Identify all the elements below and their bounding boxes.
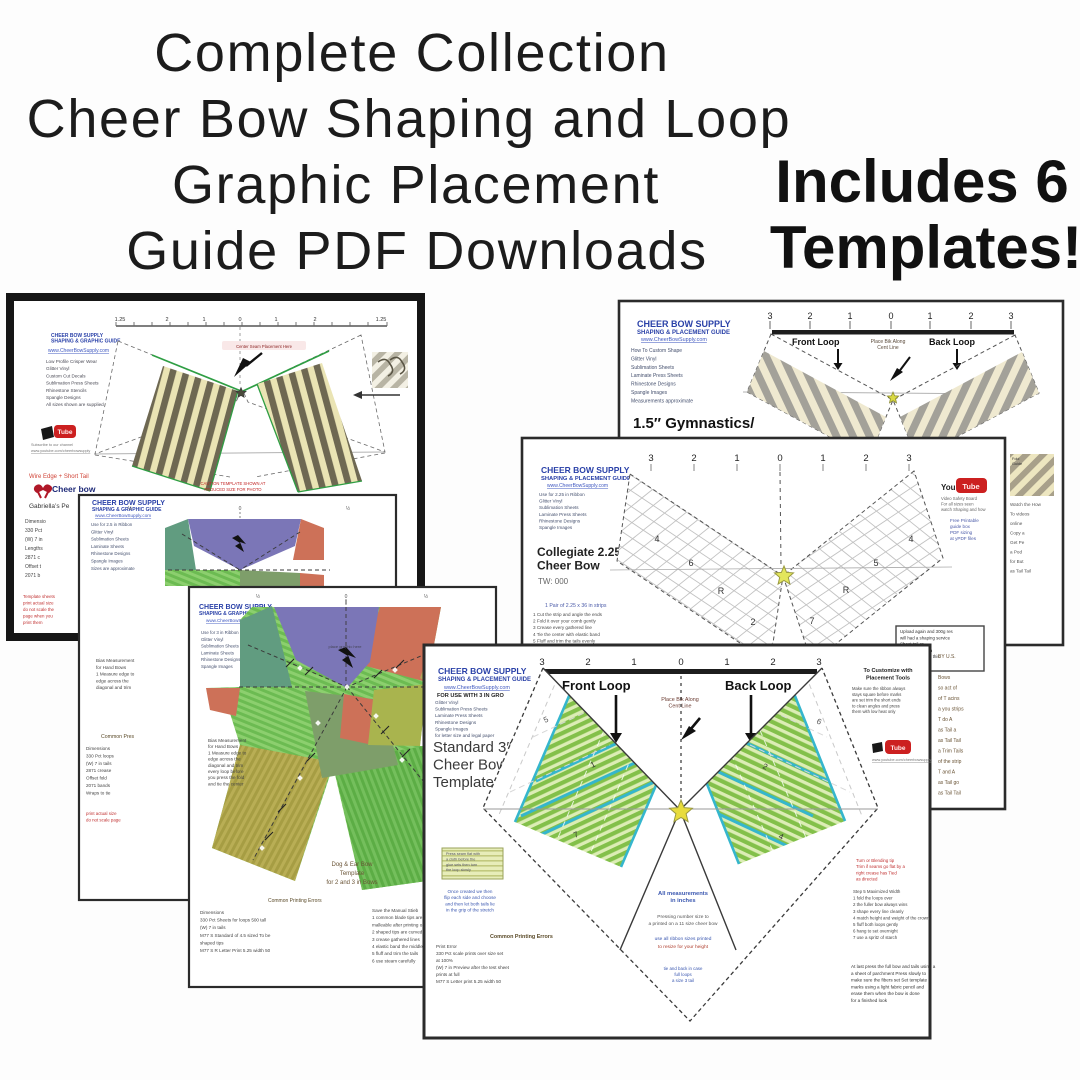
svg-text:3 shape every line cleanly: 3 shape every line cleanly — [853, 909, 904, 914]
svg-text:3: 3 — [539, 657, 544, 668]
svg-text:Back Loop: Back Loop — [929, 337, 976, 347]
svg-text:watch Shaping and how: watch Shaping and how — [941, 507, 986, 512]
svg-text:print actual size: print actual size — [86, 811, 117, 816]
svg-text:2: 2 — [313, 317, 316, 323]
svg-text:www.CheerBowSupply.com: www.CheerBowSupply.com — [640, 337, 707, 343]
svg-text:Once created we then: Once created we then — [448, 889, 493, 894]
svg-text:Cheer bow: Cheer bow — [52, 484, 96, 494]
svg-text:Front Loop: Front Loop — [792, 337, 840, 347]
svg-text:5 fluff both loops gently: 5 fluff both loops gently — [853, 922, 899, 927]
svg-text:1: 1 — [847, 311, 852, 321]
svg-text:Tube: Tube — [890, 745, 905, 752]
svg-text:(W) 7 in tails: (W) 7 in tails — [86, 761, 112, 766]
svg-text:make sure the fibers set: make sure the fibers set Set template — [851, 978, 928, 983]
svg-text:FOR USE WITH 3 IN GRO: FOR USE WITH 3 IN GRO — [437, 693, 504, 699]
svg-text:5 fluff and trim the tail: 5 fluff and trim the tails — [372, 951, 419, 956]
svg-text:Press seam flat with: Press seam flat with — [446, 852, 480, 856]
svg-text:them with low heat only: them with low heat only — [852, 709, 896, 714]
svg-text:for 2 and 3 in Bows: for 2 and 3 in Bows — [326, 880, 377, 886]
svg-text:Sublimation Sheets: Sublimation Sheets — [631, 365, 675, 371]
svg-text:1: 1 — [820, 453, 825, 464]
svg-text:for letter size and legal pape: for letter size and legal paper — [435, 733, 495, 738]
svg-text:Spangle Images: Spangle Images — [539, 525, 573, 530]
svg-text:a cloth before the: a cloth before the — [446, 857, 475, 861]
svg-text:M77 S Letter print 5.25 w: M77 S Letter print 5.25 width 50 — [436, 979, 502, 984]
svg-text:www.CheerBowSupply.com: www.CheerBowSupply.com — [443, 685, 510, 691]
svg-text:4 match height and weight: 4 match height and weight of the crown — [853, 915, 930, 920]
svg-text:1 Pair of 2.25 x 36 in strips: 1 Pair of 2.25 x 36 in strips — [545, 603, 607, 609]
svg-text:M77 S R Letter Print 5.25 wi: M77 S R Letter Print 5.25 width 50 — [200, 948, 271, 953]
svg-text:Sublimation Sheets: Sublimation Sheets — [91, 537, 130, 542]
svg-text:Cheer Bow: Cheer Bow — [433, 757, 507, 774]
svg-text:4: 4 — [654, 534, 659, 544]
svg-text:Cent Line: Cent Line — [668, 704, 691, 710]
svg-text:use all ribbon sizes printed: use all ribbon sizes printed — [655, 936, 712, 942]
svg-text:Glitter Vinyl: Glitter Vinyl — [201, 637, 223, 642]
svg-text:diagonal and trim: diagonal and trim — [208, 763, 243, 768]
svg-text:Back Loop: Back Loop — [725, 678, 792, 693]
svg-text:Templates!: Templates! — [770, 214, 1080, 281]
svg-text:2 the fuller bow always w: 2 the fuller bow always wins — [853, 902, 908, 907]
svg-text:2: 2 — [585, 657, 590, 668]
svg-text:For all sizes seen: For all sizes seen — [941, 502, 974, 507]
svg-text:1 fold the loops over: 1 fold the loops over — [853, 896, 893, 901]
svg-text:Glitter Vinyl: Glitter Vinyl — [91, 529, 113, 534]
svg-text:in inches: in inches — [670, 898, 695, 904]
svg-text:Wire Edge + Short Tail: Wire Edge + Short Tail — [29, 474, 89, 480]
svg-text:SHAPING & PLACEMENT GUIDE: SHAPING & PLACEMENT GUIDE — [541, 476, 631, 482]
svg-text:Step 5 Maximized Width: Step 5 Maximized Width — [853, 889, 901, 894]
svg-text:Guide PDF Downloads: Guide PDF Downloads — [126, 221, 708, 281]
svg-text:2: 2 — [807, 311, 812, 321]
svg-text:All sizes shown are supplied: All sizes shown are supplied — [46, 402, 104, 407]
svg-text:at 100%: at 100% — [436, 958, 453, 963]
svg-text:Placement Tools: Placement Tools — [866, 676, 910, 682]
svg-text:as Tail Tail: as Tail Tail — [938, 791, 961, 797]
svg-text:Glitter Vinyl: Glitter Vinyl — [435, 700, 458, 705]
svg-text:Glitter Vinyl: Glitter Vinyl — [539, 499, 562, 504]
svg-text:of T acins: of T acins — [938, 696, 960, 702]
svg-text:6: 6 — [688, 558, 693, 568]
svg-text:page when you: page when you — [23, 614, 53, 619]
svg-text:Spangle Designs: Spangle Designs — [46, 395, 81, 400]
svg-text:2: 2 — [863, 453, 868, 464]
svg-text:Bows: Bows — [938, 675, 951, 681]
svg-text:1 Measure edge to: 1 Measure edge to — [208, 750, 247, 755]
svg-text:R: R — [718, 586, 725, 596]
svg-text:R: R — [843, 585, 850, 595]
svg-text:Watch the How: Watch the How — [1010, 502, 1042, 507]
svg-text:Place Bik Along: Place Bik Along — [661, 697, 698, 703]
svg-text:At last press the full bow: At last press the full bow and tails usi… — [851, 964, 936, 969]
svg-text:tie and back in case: tie and back in case — [664, 966, 703, 971]
svg-text:7: 7 — [809, 616, 814, 626]
svg-text:full loops: full loops — [674, 972, 692, 977]
svg-text:CAUTION TEMPLATE SHOWN AT: CAUTION TEMPLATE SHOWN AT — [201, 481, 266, 486]
svg-text:Rhinestone Designs: Rhinestone Designs — [539, 518, 581, 523]
svg-text:print them: print them — [23, 620, 43, 625]
svg-text:Bias Measurement: Bias Measurement — [96, 658, 135, 663]
svg-text:1: 1 — [734, 453, 739, 464]
svg-text:4 elastic band the middle: 4 elastic band the middle — [372, 944, 423, 949]
svg-text:Use for 2.5 in Ribbon: Use for 2.5 in Ribbon — [91, 522, 133, 527]
svg-text:www.youtube.com/cheerbowsupply: www.youtube.com/cheerbowsupply — [872, 758, 931, 762]
svg-text:(W) 7 in: (W) 7 in — [25, 537, 43, 543]
svg-text:Spangle Images: Spangle Images — [91, 559, 124, 564]
svg-text:Subscribe to our channel: Subscribe to our channel — [31, 443, 73, 447]
svg-text:Dimensio: Dimensio — [25, 519, 46, 525]
svg-text:330 Pct: 330 Pct — [25, 528, 43, 534]
svg-text:All measurements: All measurements — [658, 891, 708, 897]
svg-text:Make sure the ribbon always: Make sure the ribbon always — [852, 686, 905, 691]
svg-text:PDF sizing: PDF sizing — [950, 530, 973, 535]
svg-text:3 crease gathered lines: 3 crease gathered lines — [372, 937, 420, 942]
svg-text:Spangle Images: Spangle Images — [631, 390, 668, 396]
svg-text:1: 1 — [202, 317, 205, 323]
svg-text:guide box: guide box — [950, 524, 971, 529]
svg-text:Cent Line: Cent Line — [877, 345, 899, 351]
svg-text:7 use a spritz of starch: 7 use a spritz of starch — [853, 935, 898, 940]
svg-text:Trim if seams go flat by a: Trim if seams go flat by a — [856, 864, 905, 869]
svg-text:Copy a: Copy a — [1010, 531, 1025, 536]
svg-text:Template: Template — [433, 774, 494, 791]
svg-text:BY U.S.: BY U.S. — [938, 654, 956, 660]
svg-text:for a finished look: for a finished look — [851, 998, 888, 1003]
svg-text:1: 1 — [724, 657, 729, 668]
svg-text:Custom Cut Decals: Custom Cut Decals — [46, 373, 86, 378]
svg-text:Fold: Fold — [1012, 457, 1019, 461]
svg-text:Collegiate 2.25″: Collegiate 2.25″ — [537, 545, 627, 559]
svg-text:2: 2 — [165, 317, 168, 323]
svg-text:shaped tips: shaped tips — [200, 940, 224, 945]
svg-text:print actual size: print actual size — [23, 601, 54, 606]
svg-text:malleable after printing ou: malleable after printing out — [372, 922, 427, 927]
svg-text:Laminate Press Sheets: Laminate Press Sheets — [539, 512, 587, 517]
svg-text:3: 3 — [906, 453, 911, 464]
svg-text:Laminate Press Sheets: Laminate Press Sheets — [435, 713, 483, 718]
svg-text:2871 c: 2871 c — [25, 555, 41, 561]
svg-text:of the strip: of the strip — [938, 759, 962, 765]
svg-text:in the grip of the stretc: in the grip of the stretch — [446, 908, 494, 913]
svg-text:Includes 6: Includes 6 — [775, 148, 1068, 215]
svg-text:Offset t: Offset t — [25, 564, 42, 570]
svg-text:2071 bands: 2071 bands — [86, 783, 111, 788]
svg-text:0: 0 — [678, 657, 683, 668]
svg-text:Complete Collection: Complete Collection — [154, 23, 670, 83]
svg-text:stays square before marks: stays square before marks — [852, 692, 901, 697]
svg-text:Cheer Bow: Cheer Bow — [537, 559, 600, 573]
svg-text:Use for 2.25 in Ribbon: Use for 2.25 in Ribbon — [539, 492, 585, 497]
svg-text:3: 3 — [767, 311, 772, 321]
svg-text:the loop slowly: the loop slowly — [446, 868, 471, 872]
svg-text:for Hand Bows: for Hand Bows — [96, 665, 127, 670]
svg-text:Print Error: Print Error — [436, 944, 457, 949]
svg-text:Get Pe: Get Pe — [1010, 540, 1025, 545]
svg-text:for But: for But — [1010, 559, 1024, 564]
svg-text:2071 b: 2071 b — [25, 573, 41, 579]
svg-text:1: 1 — [631, 657, 636, 668]
svg-text:2871 crease: 2871 crease — [86, 768, 112, 773]
svg-text:M77 S Standard of 4.5 sized: M77 S Standard of 4.5 sized To be — [200, 933, 271, 938]
svg-text:1.5″ Gymnastics/: 1.5″ Gymnastics/ — [633, 415, 755, 432]
svg-text:www.youtube.com/cheerbowsupply: www.youtube.com/cheerbowsupply — [31, 449, 90, 453]
svg-text:Glitter Vinyl: Glitter Vinyl — [46, 366, 69, 371]
svg-text:3 Crease every gathered line: 3 Crease every gathered line — [533, 625, 592, 630]
svg-text:Rhinestone Stencils: Rhinestone Stencils — [46, 388, 87, 393]
svg-text:www.CheerBowSupply.com: www.CheerBowSupply.com — [48, 348, 109, 354]
svg-text:do not scale the: do not scale the — [23, 607, 55, 612]
svg-text:online: online — [1010, 521, 1023, 526]
svg-text:Dimensions: Dimensions — [200, 910, 225, 915]
svg-text:a Trim Tails: a Trim Tails — [938, 749, 964, 755]
svg-text:Free Printable: Free Printable — [950, 518, 979, 523]
svg-text:0: 0 — [238, 317, 241, 323]
svg-text:0: 0 — [239, 506, 242, 512]
svg-text:Template sheets: Template sheets — [23, 594, 56, 599]
svg-text:Sublimation Press Sheets: Sublimation Press Sheets — [46, 381, 99, 386]
svg-text:Graphic Placement: Graphic Placement — [172, 155, 660, 215]
svg-text:flip each side and choose: flip each side and choose — [444, 895, 496, 900]
svg-text:glue sets then turn: glue sets then turn — [446, 863, 477, 867]
svg-text:2: 2 — [691, 453, 696, 464]
svg-text:T do A: T do A — [938, 717, 953, 723]
svg-text:a sheet of parchment Pre: a sheet of parchment Press slowly to — [851, 971, 927, 976]
svg-text:Bias Measurement: Bias Measurement — [208, 738, 247, 743]
svg-text:2: 2 — [770, 657, 775, 668]
svg-text:You: You — [941, 483, 956, 492]
svg-text:1 common blade tips are: 1 common blade tips are — [372, 915, 423, 920]
svg-text:2 shaped tips are curved: 2 shaped tips are curved — [372, 930, 423, 935]
svg-text:as directed: as directed — [856, 877, 878, 882]
svg-text:6 hang to set overnight: 6 hang to set overnight — [853, 929, 898, 934]
svg-text:Turn or Blending tip: Turn or Blending tip — [856, 858, 895, 863]
svg-text:1: 1 — [927, 311, 932, 321]
svg-text:Common Printing Errors: Common Printing Errors — [490, 934, 553, 940]
svg-text:5: 5 — [873, 558, 878, 568]
svg-text:for Hand Bows: for Hand Bows — [208, 744, 239, 749]
svg-text:Measurements approximate: Measurements approximate — [631, 398, 693, 404]
svg-text:Tube: Tube — [57, 429, 72, 436]
svg-text:Sublimation Sheets: Sublimation Sheets — [201, 644, 240, 649]
svg-text:4 Tie the center with elastic: 4 Tie the center with elastic band — [533, 632, 600, 637]
svg-text:erase them when the bow i: erase them when the bow is done — [851, 991, 920, 996]
svg-text:Center Seam Placement Here: Center Seam Placement Here — [236, 344, 293, 349]
svg-text:Video Safety Board: Video Safety Board — [941, 496, 978, 501]
svg-text:3: 3 — [1008, 311, 1013, 321]
svg-text:marks using a light fabric: marks using a light fabric pencil and — [851, 984, 924, 989]
svg-text:1.25: 1.25 — [376, 317, 387, 323]
svg-text:Front Loop: Front Loop — [562, 678, 631, 693]
svg-text:4: 4 — [908, 534, 913, 544]
svg-text:as Tail Tail: as Tail Tail — [938, 738, 961, 744]
svg-text:6 use steam carefully: 6 use steam carefully — [372, 958, 416, 963]
svg-text:How To Custom Shape: How To Custom Shape — [631, 348, 682, 354]
svg-text:Dog & Ear Bow: Dog & Ear Bow — [331, 862, 373, 868]
svg-text:Rhinestone Designs: Rhinestone Designs — [91, 551, 131, 556]
svg-text:www.CheerBowSupply.com: www.CheerBowSupply.com — [95, 513, 151, 518]
svg-text:1 Cut the strip and angle the: 1 Cut the strip and angle the ends — [533, 612, 603, 617]
svg-text:Sublimation Sheets: Sublimation Sheets — [539, 505, 579, 510]
svg-text:a Pod: a Pod — [1010, 550, 1022, 555]
svg-text:3: 3 — [816, 657, 821, 668]
svg-text:Template: Template — [340, 871, 365, 877]
svg-text:and then let both tails l: and then let both tails lie — [445, 901, 495, 906]
svg-text:to clean angles and press: to clean angles and press — [852, 703, 900, 708]
svg-text:2 Fold it over your comb gent: 2 Fold it over your comb gently — [533, 619, 597, 624]
svg-text:you press the fold: you press the fold — [208, 775, 245, 780]
svg-text:2: 2 — [968, 311, 973, 321]
svg-text:a printed on a 11 size cheer b: a printed on a 11 size cheer bow — [649, 921, 719, 927]
svg-text:Glitter Vinyl: Glitter Vinyl — [631, 356, 656, 362]
svg-text:SHAPING & GRAPHIC GUIDE: SHAPING & GRAPHIC GUIDE — [51, 339, 121, 345]
svg-text:1.25: 1.25 — [115, 317, 126, 323]
svg-text:Rhinestone Designs: Rhinestone Designs — [201, 657, 241, 662]
svg-text:Use for 3 in Ribbon: Use for 3 in Ribbon — [201, 630, 239, 635]
svg-text:every loop before: every loop before — [208, 769, 244, 774]
svg-text:CHEER BOW SUPPLY: CHEER BOW SUPPLY — [438, 666, 527, 676]
svg-text:To videos: To videos — [1010, 512, 1030, 517]
svg-text:Laminate Press Sheets: Laminate Press Sheets — [631, 373, 683, 379]
svg-text:do not scale page: do not scale page — [86, 818, 121, 823]
svg-text:as Tail Tail: as Tail Tail — [1010, 569, 1031, 574]
svg-text:Gabriella’s Pe: Gabriella’s Pe — [29, 503, 70, 510]
svg-text:TW: 000: TW: 000 — [538, 577, 569, 586]
svg-text:as Tail a: as Tail a — [938, 728, 956, 734]
svg-text:1: 1 — [274, 317, 277, 323]
svg-text:Dimensions: Dimensions — [86, 746, 111, 751]
svg-text:Laminate Sheets: Laminate Sheets — [201, 650, 235, 655]
svg-text:5 Fluff and trim the tails ev: 5 Fluff and trim the tails evenly — [533, 638, 596, 643]
svg-text:Pressing number size to: Pressing number size to — [657, 914, 709, 920]
svg-text:Common Pres: Common Pres — [101, 734, 135, 740]
svg-text:Sizes are approximate: Sizes are approximate — [91, 566, 135, 571]
svg-text:Lengths: Lengths — [25, 546, 43, 552]
svg-text:Offset fold: Offset fold — [86, 776, 107, 781]
svg-text:to resize for your height: to resize for your height — [658, 944, 709, 950]
svg-text:Rhinestone Designs: Rhinestone Designs — [435, 720, 477, 725]
svg-text:(W) 7 in Preview after the: (W) 7 in Preview after the test sheet — [436, 965, 510, 970]
svg-text:prints at full: prints at full — [436, 972, 460, 977]
svg-text:CHEER BOW SUPPLY: CHEER BOW SUPPLY — [637, 319, 731, 329]
svg-text:and tie the center: and tie the center — [208, 781, 244, 786]
svg-text:330 Pct Sheets for loops 5: 330 Pct Sheets for loops 500 tall — [200, 918, 266, 923]
svg-text:a size 3 tail: a size 3 tail — [672, 978, 694, 983]
svg-text:Spangle Images: Spangle Images — [201, 664, 234, 669]
svg-text:Tube: Tube — [962, 482, 979, 491]
svg-text:diagonal and trim: diagonal and trim — [96, 685, 131, 690]
svg-text:Standard 3″: Standard 3″ — [433, 739, 512, 756]
svg-text:a you strips: a you strips — [938, 707, 964, 713]
svg-text:To Customize with: To Customize with — [864, 668, 914, 674]
svg-text:330 Pct scale prints over: 330 Pct scale prints over size set — [436, 951, 504, 956]
svg-text:www.CheerBowSupply.com: www.CheerBowSupply.com — [547, 483, 608, 489]
svg-text:REDUCED SIZE FOR PHOTO: REDUCED SIZE FOR PHOTO — [204, 487, 262, 492]
svg-text:T and A: T and A — [938, 770, 956, 776]
svg-text:(W) 7 in tails: (W) 7 in tails — [200, 925, 226, 930]
svg-text:0: 0 — [777, 453, 782, 464]
svg-text:Low Profile Crisper Wear: Low Profile Crisper Wear — [46, 359, 97, 364]
svg-text:are set trim the short ends: are set trim the short ends — [852, 698, 901, 703]
svg-text:Wraps to tie: Wraps to tie — [86, 790, 111, 795]
svg-text:330 Pct loops: 330 Pct loops — [86, 753, 115, 758]
svg-text:Common Printing Errors: Common Printing Errors — [268, 898, 322, 904]
svg-text:Rhinestone Designs: Rhinestone Designs — [631, 382, 676, 388]
svg-text:edge across the: edge across the — [96, 678, 129, 683]
svg-text:3: 3 — [648, 453, 653, 464]
svg-text:as Tail go: as Tail go — [938, 780, 959, 786]
svg-text:2: 2 — [750, 617, 755, 627]
svg-text:so act of: so act of — [938, 686, 958, 692]
svg-text:SHAPING & PLACEMENT GUIDE: SHAPING & PLACEMENT GUIDE — [637, 330, 730, 336]
svg-text:Sublimation Press Sheets: Sublimation Press Sheets — [435, 707, 488, 712]
svg-text:1 Measure edge to: 1 Measure edge to — [96, 672, 135, 677]
svg-text:edge across the: edge across the — [208, 757, 241, 762]
svg-text:Guide: Guide — [1012, 462, 1022, 466]
svg-text:CHEER BOW SUPPLY: CHEER BOW SUPPLY — [541, 465, 630, 475]
svg-text:0: 0 — [888, 311, 893, 321]
svg-text:SHAPING & PLACEMENT GUIDE: SHAPING & PLACEMENT GUIDE — [438, 677, 531, 683]
svg-text:right crease has Tied: right crease has Tied — [856, 870, 897, 875]
svg-text:Laminate Sheets: Laminate Sheets — [91, 544, 125, 549]
svg-text:Spangle Images: Spangle Images — [435, 726, 469, 731]
svg-text:Upload again and 300g res: Upload again and 300g res — [900, 629, 954, 634]
svg-text:will had a shaping service: will had a shaping service — [900, 635, 951, 640]
svg-text:place graphic here: place graphic here — [329, 644, 363, 649]
svg-text:Cheer Bow Shaping and Loop: Cheer Bow Shaping and Loop — [27, 89, 792, 149]
svg-text:at yPDF files: at yPDF files — [950, 536, 977, 541]
svg-text:Save the Manual Stieb: Save the Manual Stieb — [372, 908, 419, 913]
